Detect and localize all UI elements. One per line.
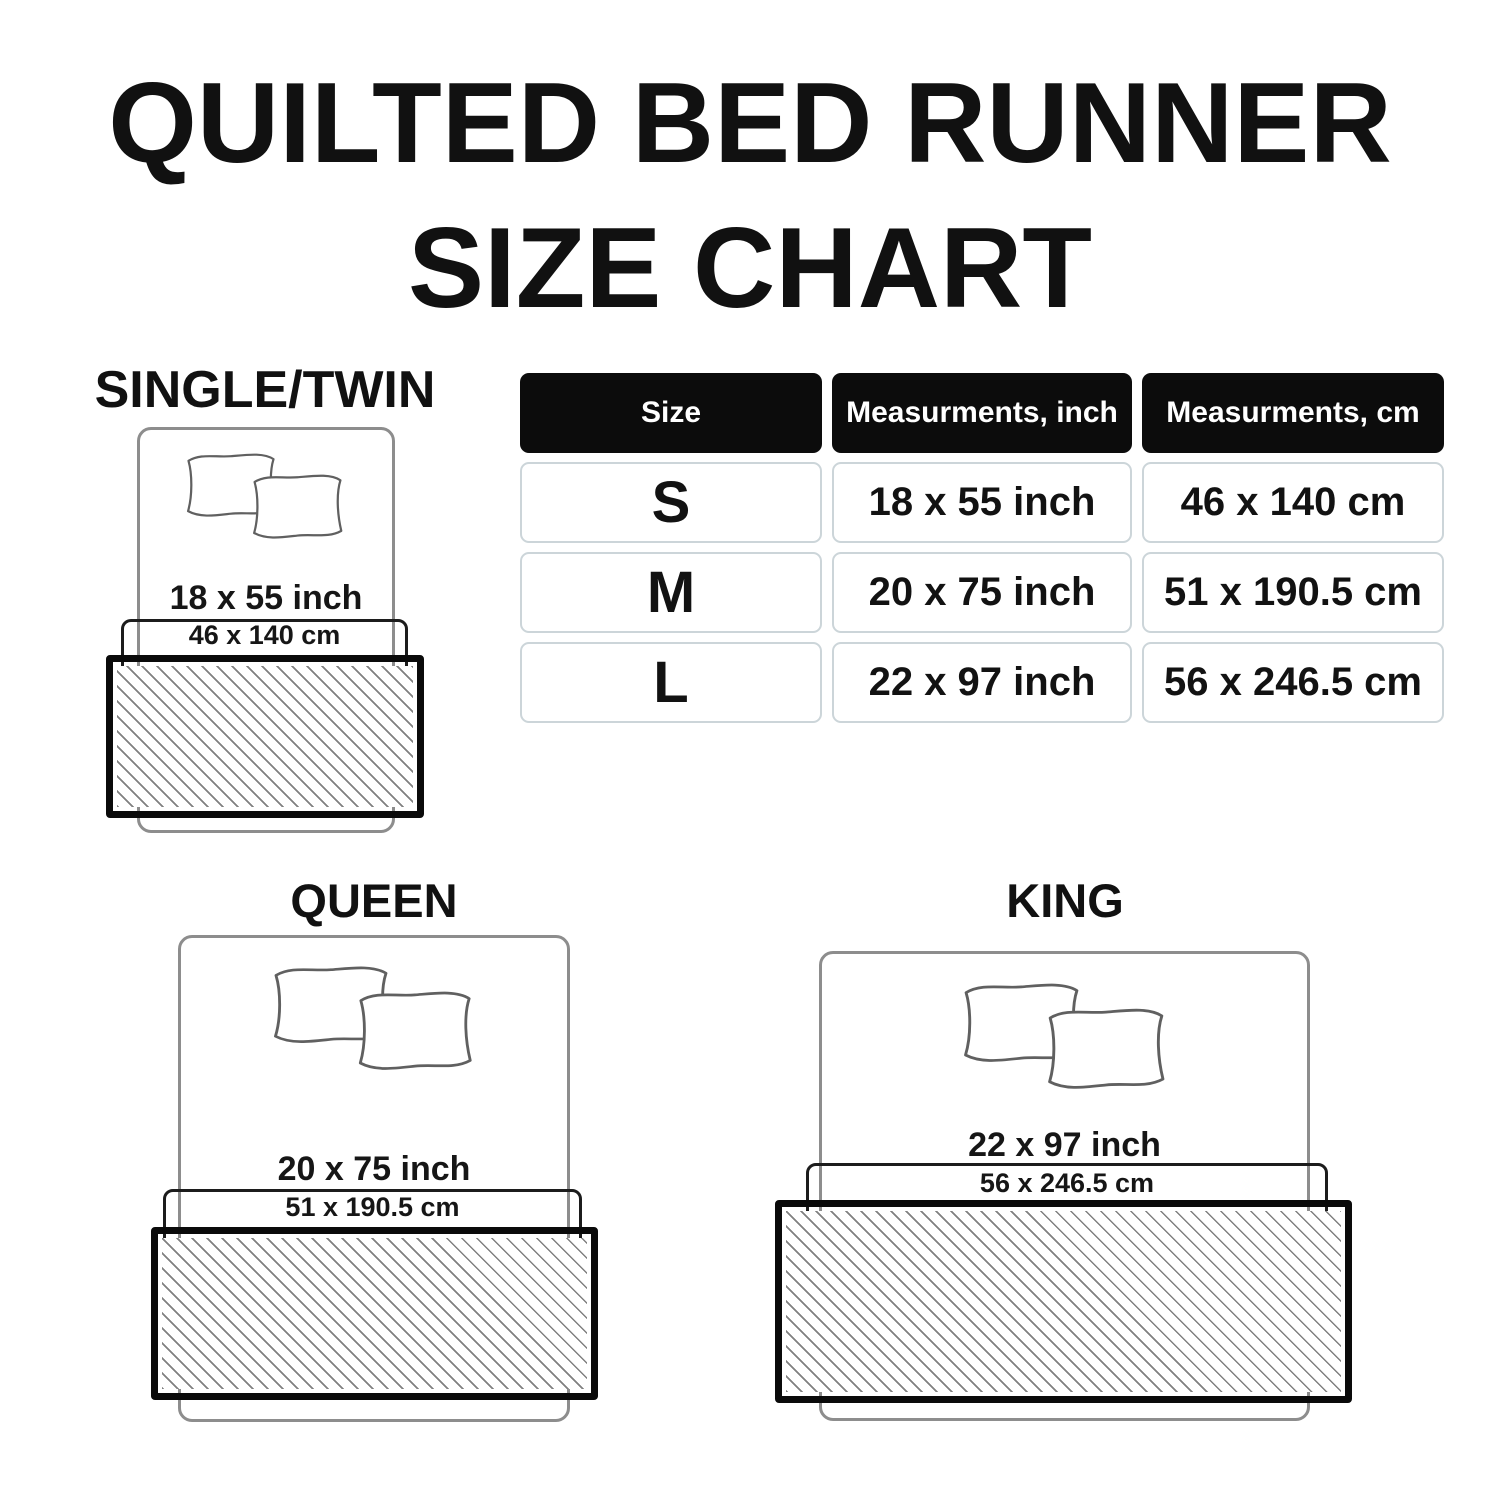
single-twin-inch-dimension: 18 x 55 inch	[137, 580, 395, 616]
table-cell-cm-s: 46 x 140 cm	[1142, 462, 1444, 543]
queen-cm-dimension: 51 x 190.5 cm	[163, 1193, 582, 1221]
single-twin-runner-illustration	[106, 655, 424, 818]
table-cell-size-s: S	[520, 462, 822, 543]
table-header-inch: Measurments, inch	[832, 373, 1132, 453]
page-title: QUILTED BED RUNNER SIZE CHART	[0, 51, 1500, 341]
queen-inch-dimension: 20 x 75 inch	[178, 1151, 570, 1187]
page-title-line-2: SIZE CHART	[0, 196, 1500, 341]
queen-label: QUEEN	[249, 876, 499, 926]
table-header-size: Size	[520, 373, 822, 453]
queen-runner-illustration	[151, 1227, 598, 1400]
table-cell-size-l: L	[520, 642, 822, 723]
quilted-bed-runner-size-chart: QUILTED BED RUNNER SIZE CHART SINGLE/TWI…	[0, 0, 1500, 1500]
table-cell-inch-m: 20 x 75 inch	[832, 552, 1132, 633]
table-cell-cm-l: 56 x 246.5 cm	[1142, 642, 1444, 723]
king-label: KING	[940, 876, 1190, 926]
table-cell-inch-s: 18 x 55 inch	[832, 462, 1132, 543]
page-title-line-1: QUILTED BED RUNNER	[0, 51, 1500, 196]
table-cell-cm-m: 51 x 190.5 cm	[1142, 552, 1444, 633]
single-twin-label: SINGLE/TWIN	[89, 362, 441, 418]
size-table: Size Measurments, inch Measurments, cm S…	[520, 373, 1444, 723]
table-cell-inch-l: 22 x 97 inch	[832, 642, 1132, 723]
king-inch-dimension: 22 x 97 inch	[819, 1127, 1310, 1163]
king-runner-illustration	[775, 1200, 1352, 1403]
king-cm-dimension: 56 x 246.5 cm	[806, 1169, 1328, 1197]
pillow-icon	[1039, 1003, 1173, 1093]
table-cell-size-m: M	[520, 552, 822, 633]
pillow-icon	[246, 470, 349, 542]
pillow-icon	[350, 986, 480, 1074]
single-twin-cm-dimension: 46 x 140 cm	[121, 621, 408, 649]
table-header-cm: Measurments, cm	[1142, 373, 1444, 453]
